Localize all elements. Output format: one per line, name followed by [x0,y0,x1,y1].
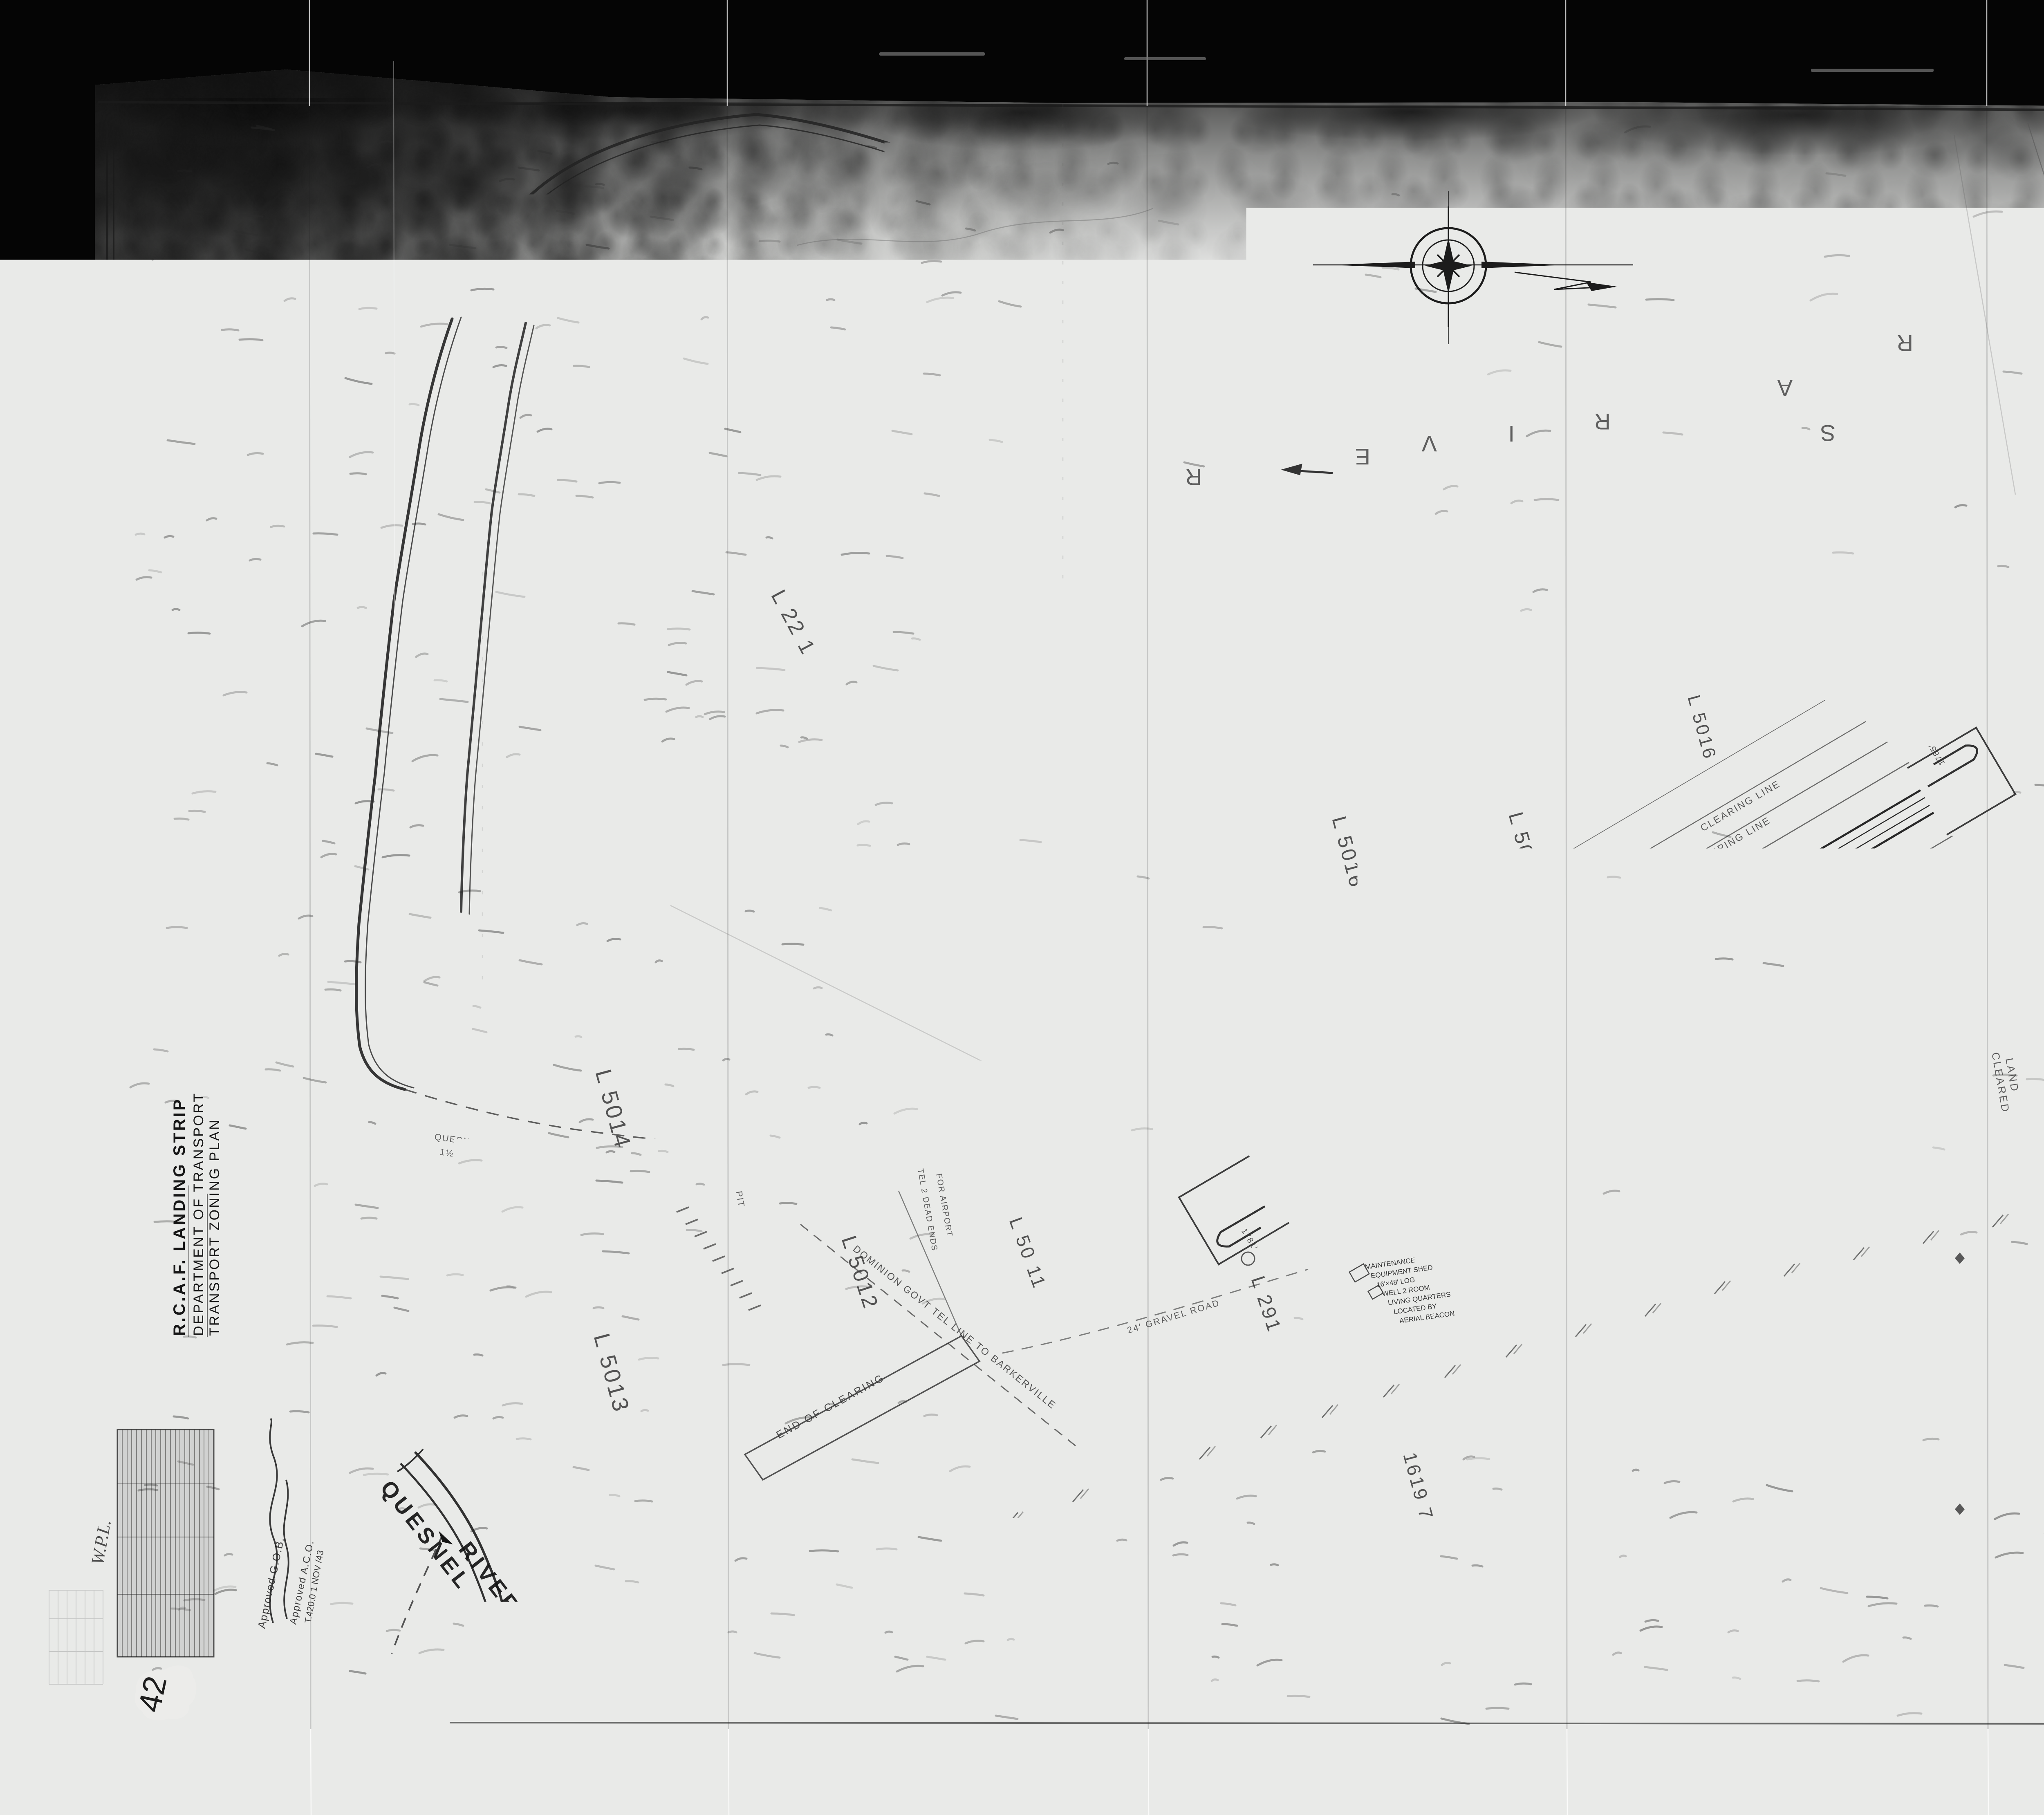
svg-text:L 6190.: L 6190. [1751,1341,1795,1426]
svg-text:L 6188: L 6188 [2041,914,2044,994]
svg-text:U: U [1600,986,1626,1014]
svg-text:CLEARING LINE: CLEARING LINE [1834,406,1915,432]
svg-text:V: V [1421,431,1437,457]
svg-text:QUESNEL: QUESNEL [376,1476,477,1595]
svg-text:R: R [1634,966,1659,994]
svg-text:E: E [1355,444,1370,470]
svg-text:24′ GRAVEL ROAD: 24′ GRAVEL ROAD [1126,1297,1221,1335]
svg-text:END OF CLEARING: END OF CLEARING [774,1371,887,1441]
svg-text:L 5012: L 5012 [837,1233,883,1313]
svg-text:TELEPHONE LINE: TELEPHONE LINE [1152,1063,1232,1130]
svg-text:R: R [1186,464,1202,490]
svg-text:L 50 11: L 50 11 [1005,1214,1051,1292]
svg-text:FOR AIRPORT: FOR AIRPORT [934,1173,954,1238]
svg-text:A: A [1501,1044,1526,1072]
svg-text:W: W [1530,1025,1559,1055]
svg-text:TRANSPORT ZONING PLAN: TRANSPORT ZONING PLAN [207,1118,222,1336]
svg-text:L 290: L 290 [1766,1138,1805,1201]
svg-text:Y: Y [1468,1064,1492,1092]
svg-text:L 22 1: L 22 1 [766,586,820,659]
svg-text:N: N [1567,1005,1592,1033]
svg-text:R: R [1594,409,1611,435]
svg-text:L 5013: L 5013 [589,1331,634,1416]
svg-text:I: I [1508,421,1515,447]
svg-text:L 291: L 291 [1247,1273,1286,1336]
svg-text:DRAW 9-10′ BELOW AVERAGE GROUN: DRAW 9-10′ BELOW AVERAGE GROUND [861,769,1085,811]
svg-text:PRINCE GEORGE: PRINCE GEORGE [1631,546,1737,634]
svg-text:L 5014: L 5014 [590,1067,636,1152]
svg-text:L 5016: L 5016 [1327,813,1369,891]
svg-text:L 5017: L 5017 [1504,809,1545,887]
svg-text:DEPARTMENT OF TRANSPORT: DEPARTMENT OF TRANSPORT [191,1092,206,1336]
svg-text:W.P.L.: W.P.L. [87,1518,115,1566]
svg-text:42: 42 [131,1673,174,1715]
svg-text:A: A [1777,375,1793,401]
svg-text:S: S [1820,420,1836,446]
svg-text:G R O U N D: G R O U N D [1829,1205,1931,1240]
svg-text:1619 7: 1619 7 [1399,1450,1437,1523]
svg-text:R: R [1897,330,1913,356]
svg-text:R.C.A.F. LANDING STRIP: R.C.A.F. LANDING STRIP [170,1098,188,1336]
svg-text:L 5015: L 5015 [1138,849,1183,934]
svg-text:QUESNEL: QUESNEL [434,1132,483,1148]
svg-text:L 5016: L 5016 [1683,693,1720,762]
